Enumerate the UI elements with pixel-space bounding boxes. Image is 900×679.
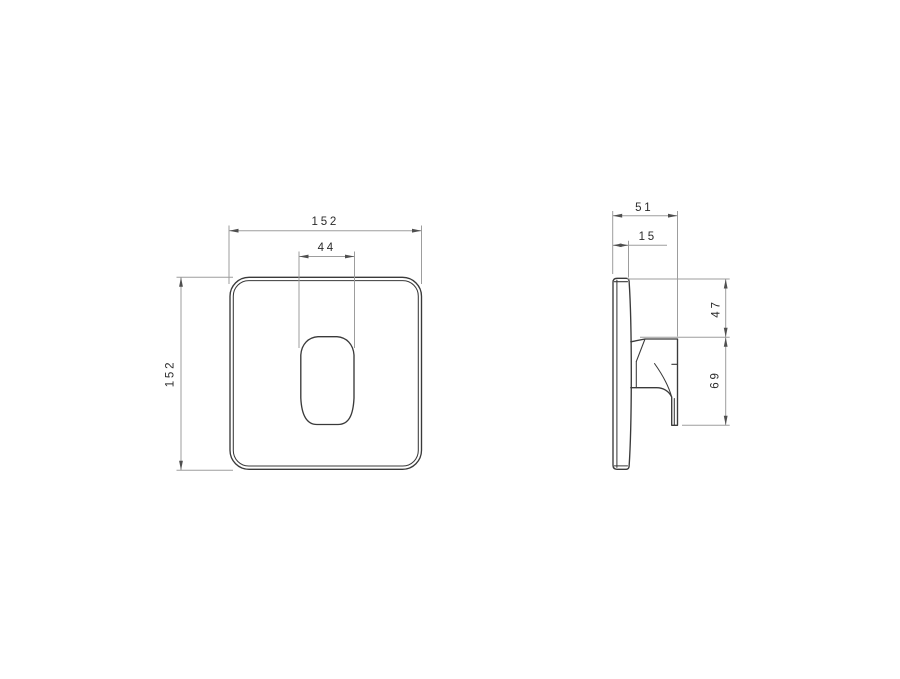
front-width-arrow-left <box>229 229 239 233</box>
front-height-arrow-top <box>179 277 183 287</box>
front-plate-outline <box>230 277 422 469</box>
front-plate-inner-edge <box>233 281 418 466</box>
front-dimensions <box>177 226 422 471</box>
technical-drawing-canvas: 152 44 152 51 15 47 69 <box>0 0 900 679</box>
side-plate-depth-label: 15 <box>618 231 678 244</box>
upper-offset-arrow-bottom <box>724 328 728 338</box>
side-handle-span-label: 69 <box>710 350 723 410</box>
front-view <box>177 226 422 471</box>
front-width-arrow-right <box>412 229 422 233</box>
side-upper-offset-label: 47 <box>710 278 723 338</box>
button-width-label: 44 <box>297 242 357 255</box>
side-handle-housing-outline <box>631 339 678 425</box>
side-housing-taper-edge <box>636 339 645 362</box>
handle-span-arrow-top <box>724 337 728 347</box>
front-plate <box>230 277 422 469</box>
front-height-arrow-bottom <box>179 461 183 471</box>
front-height-label: 152 <box>165 344 178 404</box>
button-width-arrow-left <box>299 255 309 259</box>
drawing-geometry <box>0 0 900 679</box>
side-depth-label: 51 <box>614 202 674 215</box>
side-view <box>613 211 730 469</box>
upper-offset-arrow-top <box>724 279 728 289</box>
button-width-arrow-right <box>345 255 355 259</box>
handle-span-arrow-bottom <box>724 416 728 426</box>
side-plate-outline <box>613 278 631 469</box>
front-width-label: 152 <box>295 216 355 229</box>
side-profile <box>613 278 678 469</box>
front-button-outline <box>301 337 354 425</box>
